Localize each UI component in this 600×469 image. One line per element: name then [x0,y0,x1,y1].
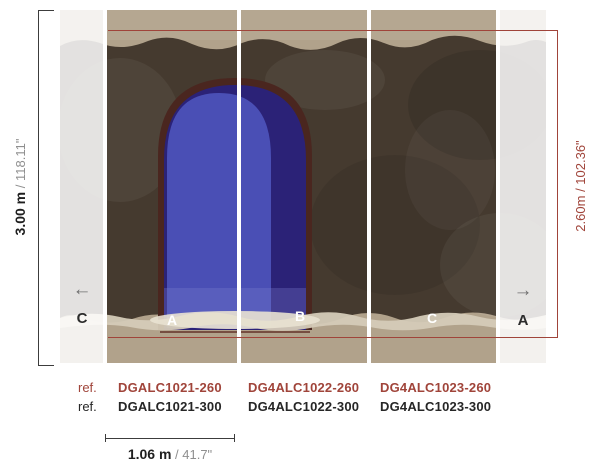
ref-code-1023-260: DG4ALC1023-260 [380,380,491,395]
print-height-top-line [108,30,557,31]
panel-c-letter: C [418,310,446,326]
left-arrow-icon: ← [68,280,96,300]
panel-width-left-tick [105,434,106,442]
total-height-imperial: 118.11" [13,139,28,181]
arch-threshold-line [160,331,310,333]
print-height-bottom-line [108,337,557,338]
left-strip-gap [103,10,107,363]
total-height-bracket-bottom-tick [38,365,54,366]
print-height-separator: / [573,185,588,196]
ref-label-260: ref. [78,380,97,395]
left-repeat-letter: C [68,310,96,327]
ref-code-1023-300: DG4ALC1023-300 [380,399,491,414]
wallpaper-spec-diagram: 3.00 m / 118.11" 2.60m / 102.36" ← C → A… [0,0,600,469]
ref-code-1022-260: DG4ALC1022-260 [248,380,359,395]
ref-code-1021-260: DGALC1021-260 [118,380,222,395]
total-height-bracket-top-tick [38,10,54,11]
panel-width-line [105,438,235,439]
panel-width-separator: / [171,447,182,462]
panel-width-imperial: 41.7" [182,447,212,462]
panel-b-letter: B [286,308,314,324]
panel-width-metric: 1.06 m [128,446,172,462]
panel-divider-a-b [237,10,241,363]
ref-label-300: ref. [78,399,97,414]
print-height-imperial: 102.36" [573,140,588,184]
print-height-bracket [557,30,558,338]
total-height-separator: / [13,181,28,192]
panel-divider-b-c [367,10,371,363]
total-height-bracket [38,10,39,366]
print-height-label: 2.60m / 102.36" [571,101,591,271]
right-arrow-icon: → [509,281,537,301]
ref-code-1021-300: DGALC1021-300 [118,399,222,414]
total-height-label: 3.00 m / 118.11" [10,102,30,272]
panel-width-label: 1.06 m / 41.7" [90,446,250,464]
total-height-metric: 3.00 m [12,192,28,236]
right-repeat-letter: A [509,312,537,329]
right-strip-gap [496,10,500,363]
panel-a-letter: A [158,312,186,328]
mural-plaster-highlight [60,10,546,40]
arch-doorway [158,78,312,330]
print-height-metric: 2.60m [573,196,588,232]
panel-width-right-tick [234,434,235,442]
right-repeat-fade [500,10,546,363]
ref-code-1022-300: DG4ALC1022-300 [248,399,359,414]
